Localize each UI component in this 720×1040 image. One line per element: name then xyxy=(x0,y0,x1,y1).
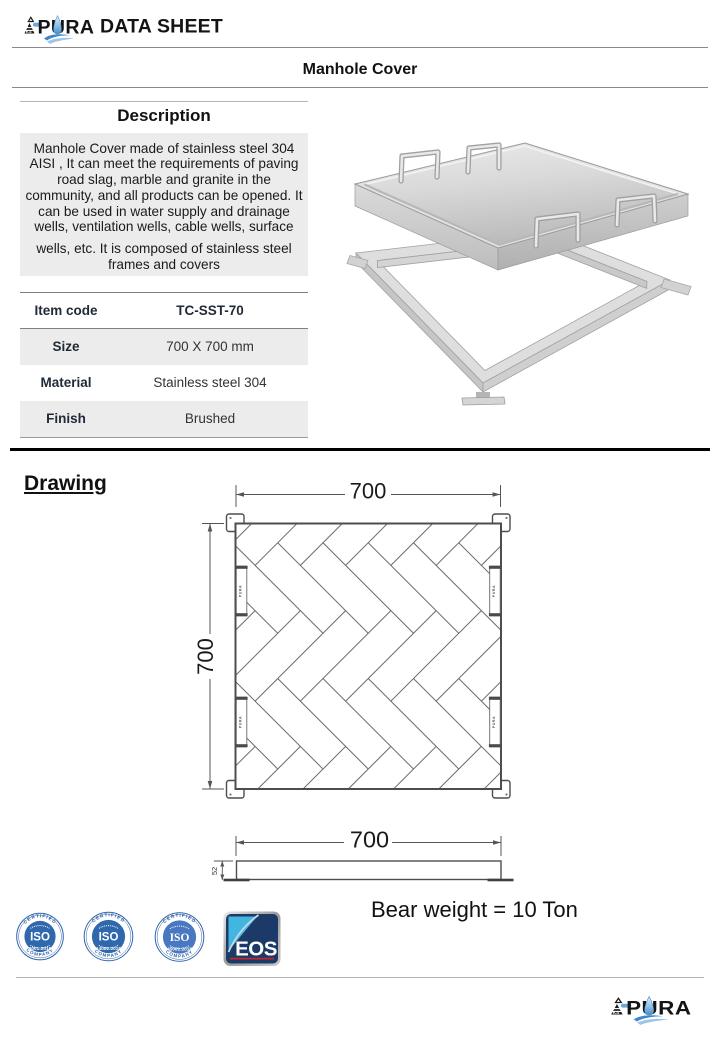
svg-text:700: 700 xyxy=(350,827,389,853)
svg-text:9001:2015: 9001:2015 xyxy=(29,946,52,951)
svg-text:ISO: ISO xyxy=(99,931,119,943)
svg-text:PURA: PURA xyxy=(492,585,496,597)
svg-text:ISO: ISO xyxy=(170,932,190,944)
svg-text:ISO: ISO xyxy=(30,931,50,943)
svg-text:700: 700 xyxy=(350,479,387,504)
svg-text:KS: KS xyxy=(612,1010,619,1015)
svg-text:PURA: PURA xyxy=(492,716,496,728)
svg-text:EOS: EOS xyxy=(235,938,277,961)
svg-text:14001:2015: 14001:2015 xyxy=(96,946,121,951)
svg-text:45001:2018: 45001:2018 xyxy=(167,946,192,951)
